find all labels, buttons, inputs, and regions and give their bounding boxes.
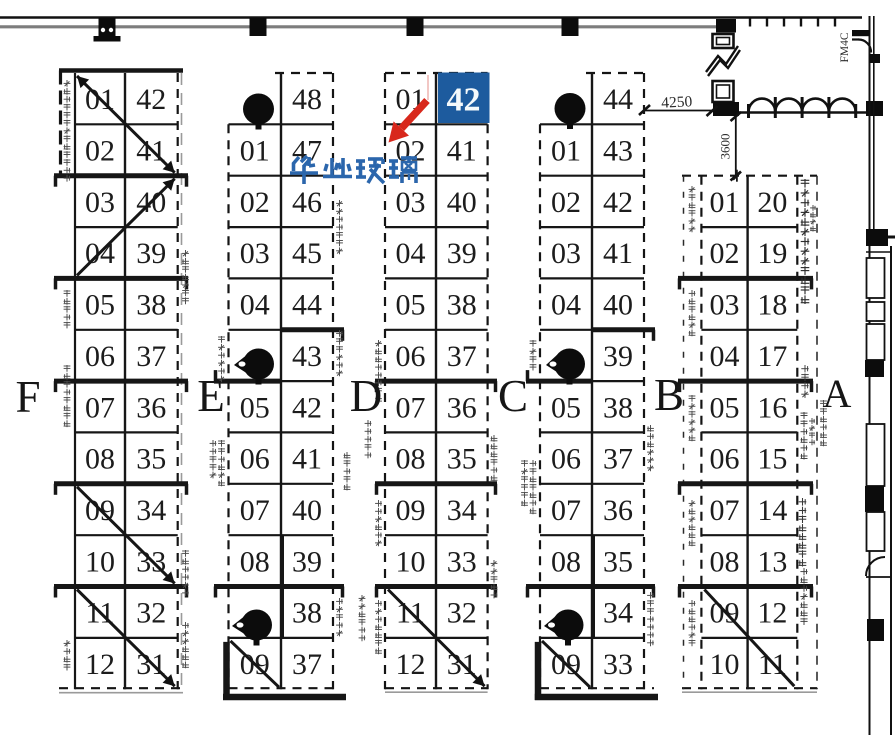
svg-text:06: 06 (85, 340, 115, 373)
svg-text:43: 43 (292, 340, 322, 373)
svg-text:08: 08 (240, 545, 270, 578)
svg-text:04: 04 (396, 237, 426, 270)
svg-text:05: 05 (551, 391, 581, 424)
svg-text:05: 05 (710, 391, 740, 424)
svg-text:42: 42 (136, 83, 166, 116)
svg-text:D: D (350, 371, 383, 421)
svg-text:09: 09 (396, 494, 426, 527)
svg-text:40: 40 (292, 494, 322, 527)
svg-text:41: 41 (603, 237, 633, 270)
svg-text:10: 10 (396, 545, 426, 578)
svg-text:10: 10 (85, 545, 115, 578)
svg-text:FM4C: FM4C (839, 32, 851, 62)
svg-text:07: 07 (85, 391, 115, 424)
svg-text:04: 04 (551, 289, 581, 322)
svg-text:04: 04 (710, 340, 740, 373)
svg-text:06: 06 (551, 443, 581, 476)
svg-text:06: 06 (396, 340, 426, 373)
svg-text:32: 32 (136, 597, 166, 630)
svg-text:B: B (654, 370, 684, 420)
svg-text:07: 07 (240, 494, 270, 527)
svg-text:37: 37 (603, 443, 633, 476)
svg-text:04: 04 (240, 289, 270, 322)
svg-text:F: F (15, 372, 40, 422)
svg-text:48: 48 (292, 83, 322, 116)
svg-text:46: 46 (292, 186, 322, 219)
svg-text:33: 33 (603, 648, 633, 681)
svg-text:08: 08 (551, 545, 581, 578)
svg-text:01: 01 (710, 186, 740, 219)
svg-text:34: 34 (136, 494, 166, 527)
svg-text:08: 08 (85, 443, 115, 476)
svg-text:39: 39 (292, 545, 322, 578)
svg-text:38: 38 (603, 391, 633, 424)
svg-text:37: 37 (136, 340, 166, 373)
svg-text:03: 03 (551, 237, 581, 270)
svg-text:05: 05 (396, 289, 426, 322)
svg-text:05: 05 (240, 391, 270, 424)
svg-text:42: 42 (292, 391, 322, 424)
svg-text:16: 16 (757, 391, 787, 424)
svg-text:44: 44 (292, 289, 322, 322)
svg-text:36: 36 (136, 391, 166, 424)
svg-text:06: 06 (240, 443, 270, 476)
svg-text:20: 20 (757, 186, 787, 219)
svg-text:15: 15 (757, 443, 787, 476)
svg-text:36: 36 (447, 391, 477, 424)
svg-text:39: 39 (603, 340, 633, 373)
svg-text:03: 03 (396, 186, 426, 219)
svg-text:40: 40 (603, 289, 633, 322)
svg-text:33: 33 (447, 545, 477, 578)
svg-text:35: 35 (136, 443, 166, 476)
svg-text:4250: 4250 (661, 93, 693, 112)
svg-text:12: 12 (396, 648, 426, 681)
svg-text:38: 38 (447, 289, 477, 322)
svg-text:35: 35 (603, 545, 633, 578)
svg-text:01: 01 (551, 135, 581, 168)
svg-text:35: 35 (447, 443, 477, 476)
svg-text:18: 18 (757, 289, 787, 322)
svg-text:C: C (498, 371, 528, 421)
svg-text:12: 12 (85, 648, 115, 681)
svg-text:02: 02 (240, 186, 270, 219)
svg-text:37: 37 (292, 648, 322, 681)
svg-text:45: 45 (292, 237, 322, 270)
svg-text:07: 07 (396, 391, 426, 424)
svg-text:19: 19 (757, 237, 787, 270)
svg-text:38: 38 (136, 289, 166, 322)
svg-text:43: 43 (603, 135, 633, 168)
svg-text:3600: 3600 (718, 134, 733, 160)
svg-text:41: 41 (447, 135, 477, 168)
svg-text:10: 10 (710, 648, 740, 681)
svg-text:03: 03 (710, 289, 740, 322)
svg-text:42: 42 (603, 186, 633, 219)
svg-text:38: 38 (292, 597, 322, 630)
svg-text:03: 03 (85, 186, 115, 219)
svg-text:13: 13 (757, 545, 787, 578)
svg-text:08: 08 (396, 443, 426, 476)
svg-text:07: 07 (710, 494, 740, 527)
svg-text:44: 44 (603, 83, 633, 116)
svg-text:01: 01 (240, 135, 270, 168)
svg-text:A: A (823, 371, 852, 416)
svg-text:06: 06 (710, 443, 740, 476)
svg-text:12: 12 (757, 597, 787, 630)
svg-text:34: 34 (447, 494, 477, 527)
svg-text:02: 02 (710, 237, 740, 270)
svg-text:03: 03 (240, 237, 270, 270)
svg-text:08: 08 (710, 545, 740, 578)
svg-text:32: 32 (447, 597, 477, 630)
svg-text:37: 37 (447, 340, 477, 373)
svg-text:39: 39 (136, 237, 166, 270)
svg-text:14: 14 (757, 494, 787, 527)
svg-text:E: E (197, 371, 225, 421)
svg-text:42: 42 (447, 82, 481, 119)
svg-text:02: 02 (551, 186, 581, 219)
svg-text:34: 34 (603, 597, 633, 630)
svg-text:17: 17 (757, 340, 787, 373)
svg-text:39: 39 (447, 237, 477, 270)
svg-text:36: 36 (603, 494, 633, 527)
svg-text:02: 02 (85, 135, 115, 168)
svg-text:41: 41 (292, 443, 322, 476)
svg-text:05: 05 (85, 289, 115, 322)
svg-text:40: 40 (447, 186, 477, 219)
svg-text:07: 07 (551, 494, 581, 527)
